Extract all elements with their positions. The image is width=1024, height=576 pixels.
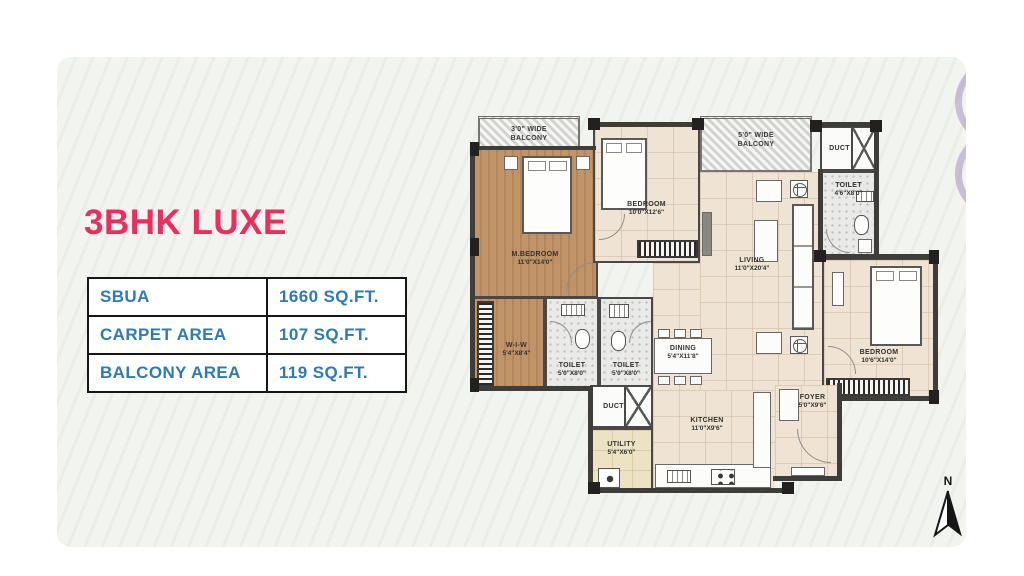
wall (933, 254, 938, 401)
wall (815, 122, 878, 127)
wall (470, 386, 593, 391)
column (470, 238, 479, 256)
wall (874, 124, 879, 259)
room-balcony-right: 5'0" WIDE BALCONY (700, 116, 812, 172)
room-label: M.BEDROOM 11'0"X14'0" (474, 250, 596, 267)
bed (870, 266, 922, 346)
washbasin (856, 191, 874, 202)
column (588, 482, 600, 494)
door-arc (550, 321, 572, 343)
table-row: SBUA 1660 SQ.FT. (88, 278, 406, 316)
tv-unit (702, 212, 712, 256)
decor-circle-icon (955, 59, 966, 145)
column (870, 120, 882, 132)
dining-chair (658, 329, 670, 338)
column (588, 118, 600, 130)
dining-chair (690, 329, 702, 338)
duct-shaft-icon (851, 128, 875, 169)
washbasin (609, 304, 629, 318)
nightstand (504, 156, 518, 170)
wall (588, 488, 790, 493)
column (929, 250, 939, 264)
nightstand (576, 156, 590, 170)
room-toilet-attached: TOILET 4'6"X8'0" (820, 171, 877, 259)
wall (588, 386, 593, 492)
column (929, 390, 939, 404)
kitchen-counter (753, 392, 771, 468)
room-master-bedroom: M.BEDROOM 11'0"X14'0" (472, 148, 598, 298)
table-row: CARPET AREA 107 SQ.FT. (88, 316, 406, 354)
page-title: 3BHK LUXE (84, 203, 287, 243)
pillow (549, 161, 567, 171)
decor-circle-icon (955, 131, 966, 217)
shower-tray (858, 239, 872, 253)
entrance-step (791, 467, 825, 476)
stove (711, 469, 735, 485)
room-living: LIVING 11'0"X20'4" (700, 172, 822, 420)
wardrobe (637, 240, 698, 258)
room-duct-mid: DUCT (590, 385, 653, 428)
room-toilet-master: TOILET 5'0"X8'0" (545, 297, 599, 390)
dining-chair (674, 329, 686, 338)
door-arc (629, 321, 651, 343)
toilet-seat (854, 215, 869, 235)
wall (591, 122, 701, 127)
bed (522, 156, 572, 234)
bed (601, 138, 647, 210)
room-bedroom-3: BEDROOM 10'6"X14'0" (822, 258, 936, 398)
door-arc (826, 229, 850, 253)
pillow (899, 271, 917, 281)
wardrobe (477, 301, 494, 387)
room-label: 3'0" WIDE BALCONY (493, 125, 565, 144)
room-foyer: FOYER 5'0"X9'6" (775, 385, 840, 480)
floor-plan: 3'0" WIDE BALCONY M.BEDROOM 11'0"X14'0" (470, 110, 940, 500)
room-toilet-common: TOILET 5'0"X8'0" (599, 297, 653, 390)
column (470, 378, 479, 392)
room-bedroom-2: BEDROOM 10'0"X12'6" (593, 124, 700, 263)
column (782, 482, 794, 494)
door-arc (828, 346, 856, 374)
north-arrow-icon (930, 487, 966, 539)
pillow (606, 143, 622, 153)
room-label: TOILET 5'0"X8'0" (601, 361, 651, 378)
dining-table: DINING 5'4"X11'8" (654, 338, 712, 374)
column (810, 120, 822, 132)
area-value: 107 SQ.FT. (267, 316, 406, 354)
area-value: 1660 SQ.FT. (267, 278, 406, 316)
washbasin (561, 304, 585, 316)
kitchen-sink (667, 470, 691, 483)
toilet-seat (611, 331, 626, 351)
content-panel: 3BHK LUXE SBUA 1660 SQ.FT. CARPET AREA 1… (57, 57, 966, 547)
area-label: CARPET AREA (88, 316, 267, 354)
pillow (528, 161, 546, 171)
room-label: UTILITY 5'4"X6'0" (592, 440, 651, 457)
room-walk-in-wardrobe: W-I-W 5'4"X8'4" (472, 297, 545, 390)
wall (818, 169, 823, 259)
side-table (790, 336, 808, 354)
dresser (832, 272, 844, 306)
area-value: 119 SQ.FT. (267, 354, 406, 392)
column (692, 118, 704, 130)
wall (470, 146, 475, 390)
dining-chair (674, 376, 686, 385)
room-balcony-left: 3'0" WIDE BALCONY (478, 116, 580, 150)
coffee-table (754, 220, 778, 262)
room-label: W-I-W 5'4"X8'4" (490, 341, 543, 358)
room-label: DINING 5'4"X11'8" (655, 344, 711, 361)
duct-shaft-icon (624, 387, 651, 426)
door-arc (797, 429, 831, 463)
room-label: TOILET 5'0"X8'0" (547, 361, 597, 378)
pillow (876, 271, 894, 281)
door-arc (599, 214, 625, 240)
pillow (626, 143, 642, 153)
north-label: N (928, 475, 966, 487)
column (470, 142, 479, 156)
toilet-seat (575, 329, 590, 349)
sofa (792, 204, 814, 330)
dining-chair (658, 376, 670, 385)
dining-chair (690, 376, 702, 385)
wall (773, 476, 842, 481)
room-label: 5'0" WIDE BALCONY (720, 131, 792, 150)
compass: N (928, 475, 966, 544)
room-duct-top: DUCT (820, 126, 877, 171)
door-arc (566, 262, 596, 292)
wall (470, 146, 596, 150)
area-label: SBUA (88, 278, 267, 316)
room-kitchen: KITCHEN 11'0"X9'6" (653, 390, 775, 492)
table-row: BALCONY AREA 119 SQ.FT. (88, 354, 406, 392)
armchair (756, 332, 782, 354)
wall (837, 396, 938, 401)
armchair (756, 180, 782, 202)
area-table: SBUA 1660 SQ.FT. CARPET AREA 107 SQ.FT. … (87, 277, 407, 393)
washing-machine (598, 468, 620, 488)
column (814, 250, 826, 262)
side-table (790, 180, 808, 198)
area-label: BALCONY AREA (88, 354, 267, 392)
fridge (779, 389, 799, 421)
